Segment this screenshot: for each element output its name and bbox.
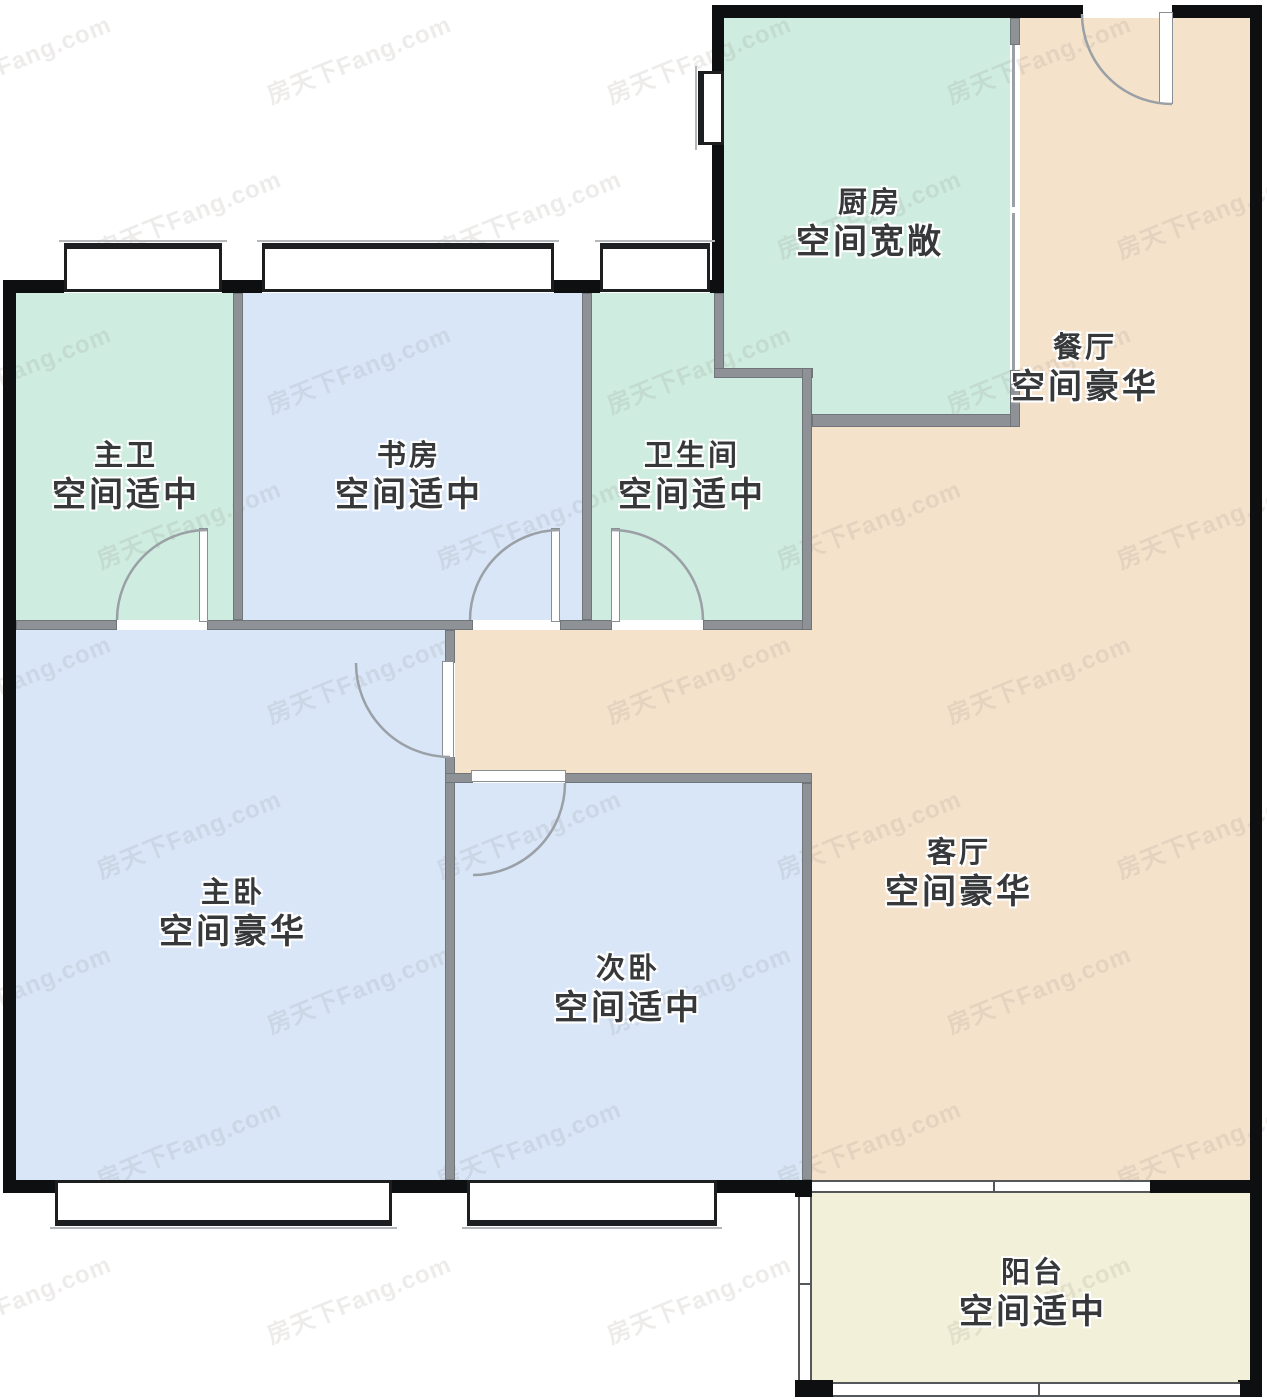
room-desc: 空间豪华 bbox=[885, 871, 1033, 913]
room-label-study: 书房 空间适中 bbox=[335, 438, 483, 516]
door-arc-study bbox=[470, 530, 560, 620]
room-desc: 空间豪华 bbox=[1011, 366, 1159, 408]
room-label-living: 客厅 空间豪华 bbox=[885, 835, 1033, 913]
room-desc: 空间宽敞 bbox=[796, 221, 944, 263]
room-desc: 空间豪华 bbox=[159, 911, 307, 953]
door-arc-bathroom bbox=[612, 530, 703, 620]
door-arc-master-bedroom bbox=[356, 663, 450, 757]
floorplan: 房天下Fang.com房天下Fang.com房天下Fang.com房天下Fang… bbox=[0, 0, 1267, 1400]
room-name: 阳台 bbox=[959, 1255, 1107, 1291]
room-label-kitchen: 厨房 空间宽敞 bbox=[796, 185, 944, 263]
room-name: 书房 bbox=[335, 438, 483, 474]
door-arc-entry bbox=[1082, 14, 1172, 104]
room-label-dining: 餐厅 空间豪华 bbox=[1011, 330, 1159, 408]
room-name: 卫生间 bbox=[618, 438, 766, 474]
room-label-second-bedroom: 次卧 空间适中 bbox=[554, 951, 702, 1029]
room-desc: 空间适中 bbox=[52, 474, 200, 516]
room-name: 主卧 bbox=[159, 875, 307, 911]
door-arc-master-bath bbox=[117, 530, 207, 620]
room-label-master-bath: 主卫 空间适中 bbox=[52, 438, 200, 516]
room-label-master-bedroom: 主卧 空间豪华 bbox=[159, 875, 307, 953]
room-name: 客厅 bbox=[885, 835, 1033, 871]
room-name: 主卫 bbox=[52, 438, 200, 474]
room-desc: 空间适中 bbox=[618, 474, 766, 516]
door-arc-second-bedroom bbox=[473, 783, 565, 875]
room-label-bathroom: 卫生间 空间适中 bbox=[618, 438, 766, 516]
room-desc: 空间适中 bbox=[959, 1291, 1107, 1333]
room-name: 次卧 bbox=[554, 951, 702, 987]
room-name: 餐厅 bbox=[1011, 330, 1159, 366]
room-label-balcony: 阳台 空间适中 bbox=[959, 1255, 1107, 1333]
room-desc: 空间适中 bbox=[554, 987, 702, 1029]
room-desc: 空间适中 bbox=[335, 474, 483, 516]
door-arcs bbox=[0, 0, 1267, 1400]
room-name: 厨房 bbox=[796, 185, 944, 221]
